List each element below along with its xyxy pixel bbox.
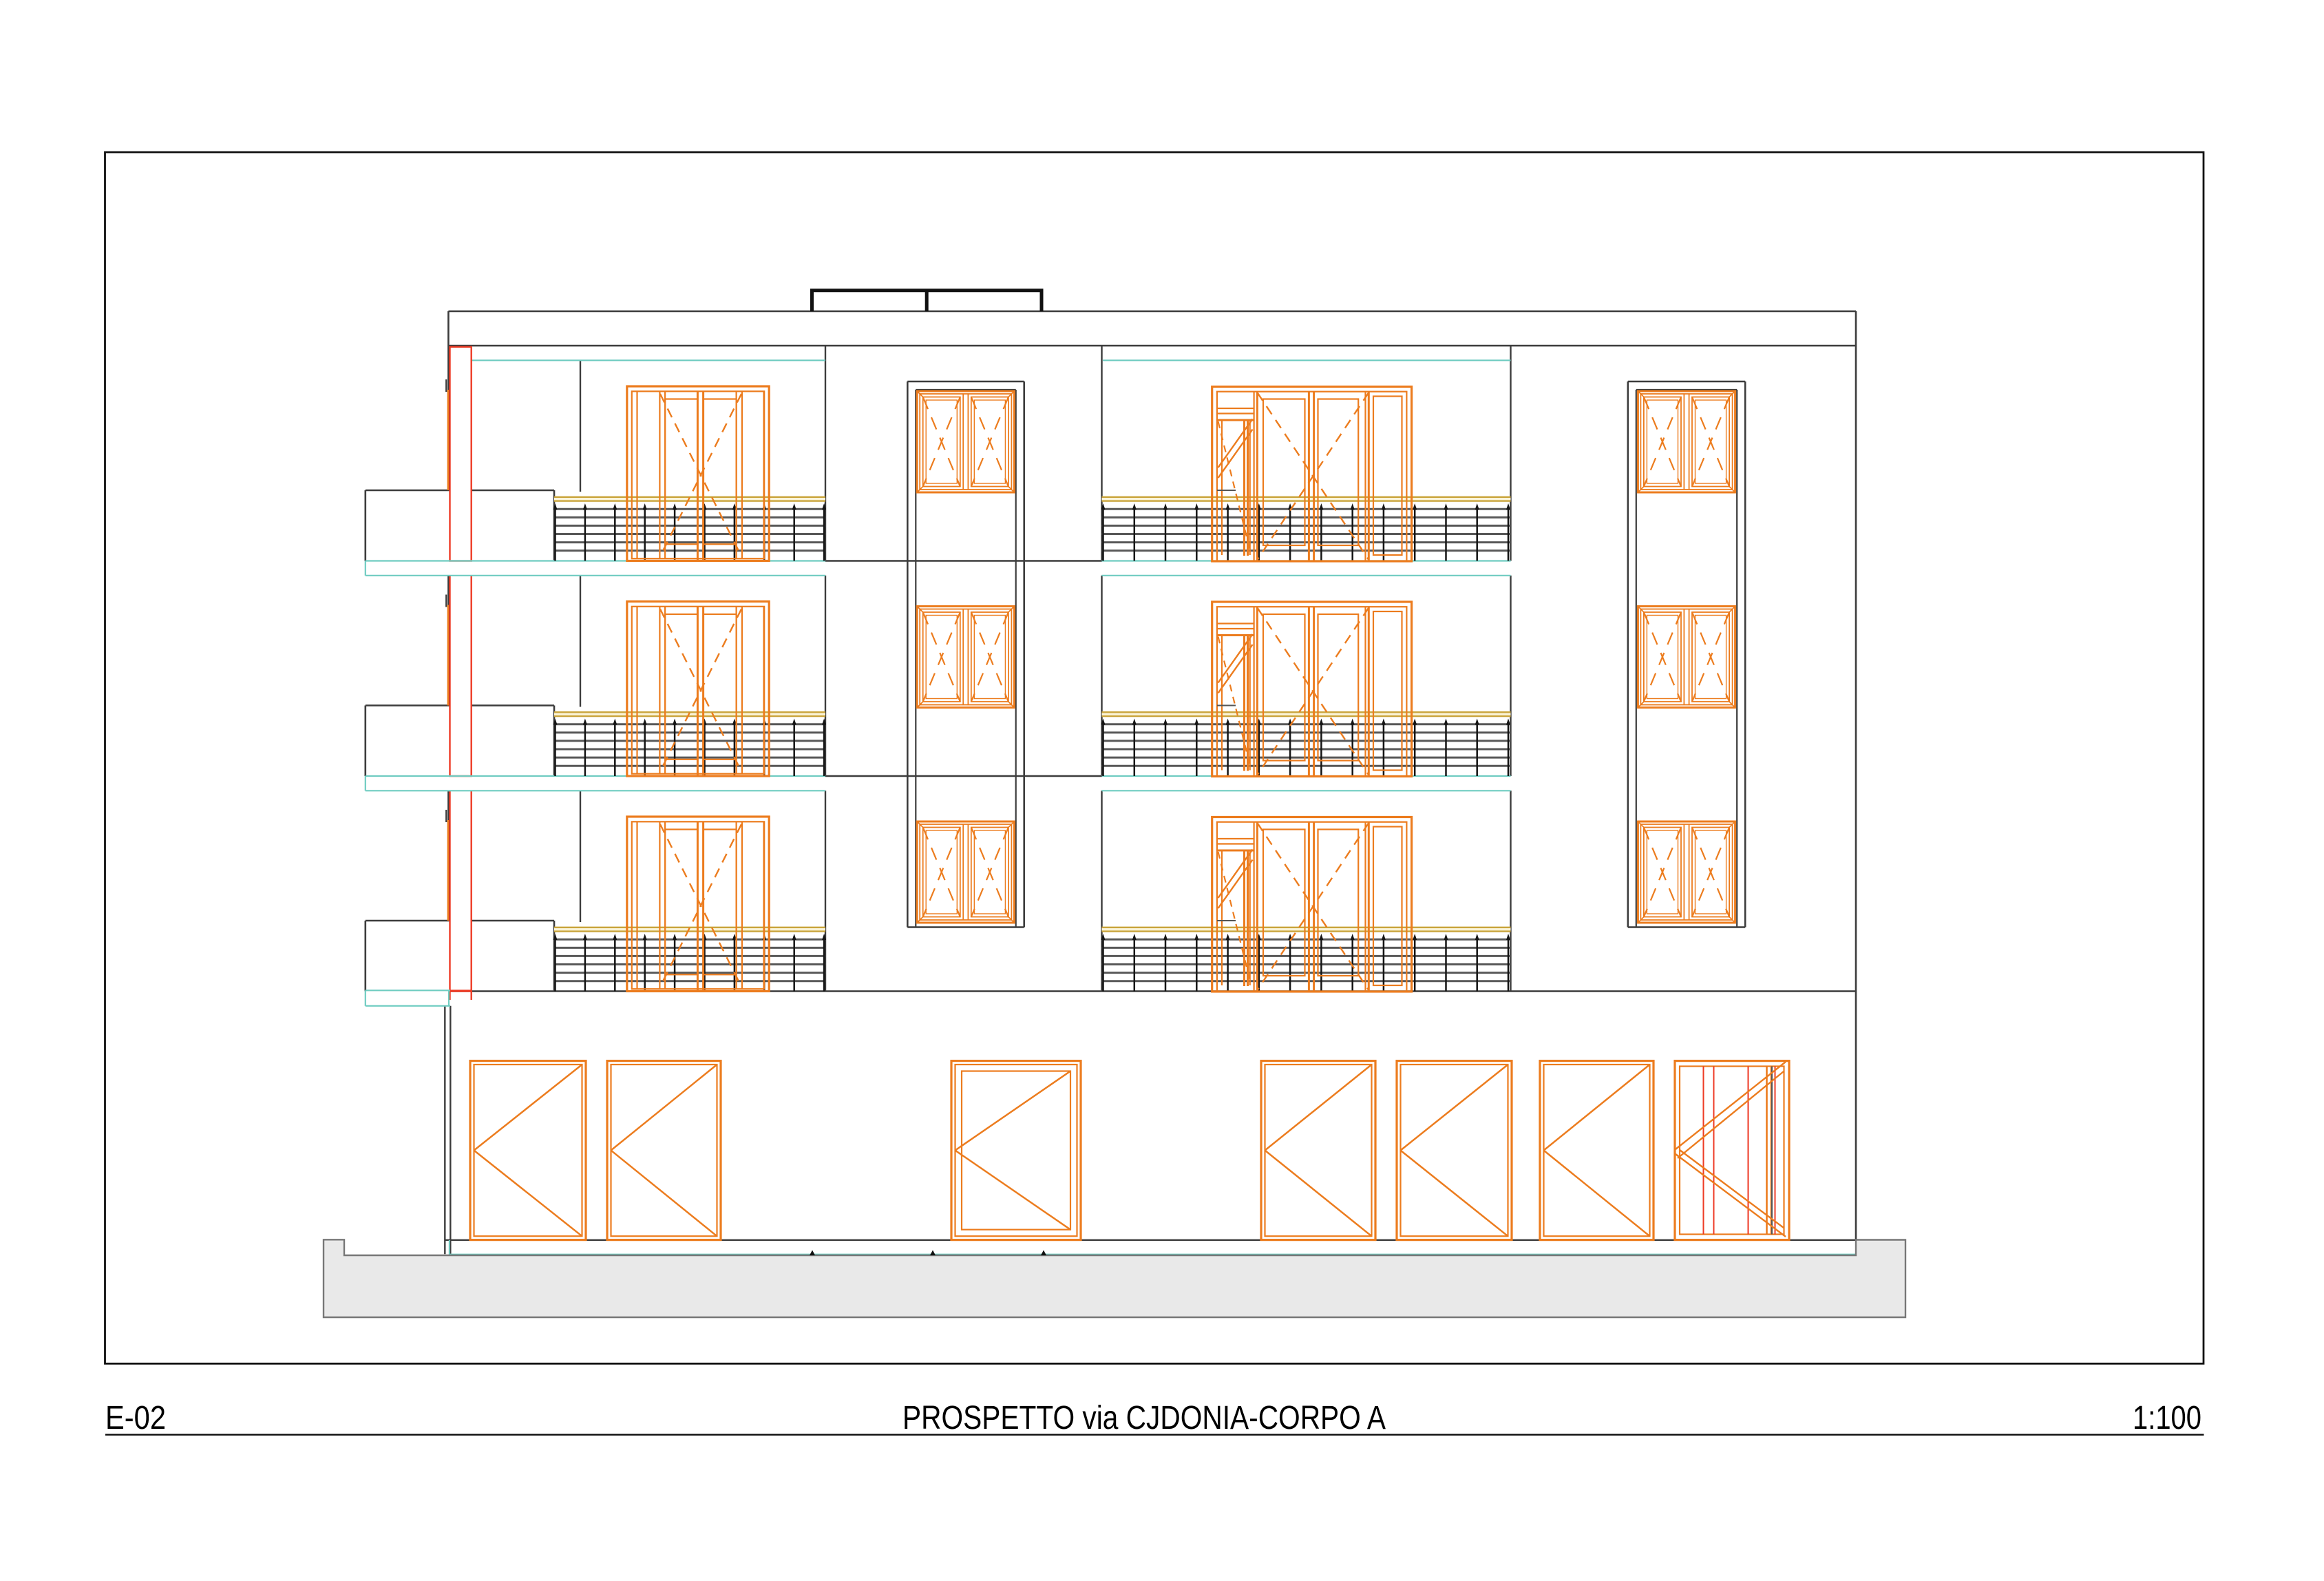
- svg-text:E-02: E-02: [105, 1400, 166, 1436]
- svg-text:1:100: 1:100: [2133, 1400, 2201, 1436]
- svg-text:PROSPETTO via CJDONIA-CORPO A: PROSPETTO via CJDONIA-CORPO A: [902, 1400, 1386, 1436]
